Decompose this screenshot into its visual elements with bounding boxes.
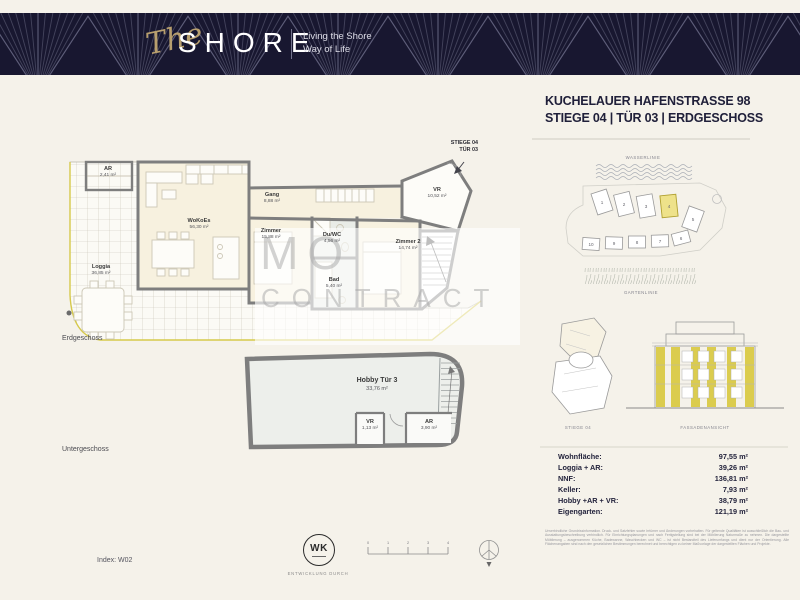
site-building-1: 1 (601, 200, 604, 205)
wk-logo-subline (312, 556, 326, 557)
development-label: ENTWICKLUNG DURCH (288, 571, 349, 576)
plan-stiege-label: STIEGE 04 (440, 140, 478, 147)
water-waves (596, 165, 692, 180)
room-name: AR (421, 419, 437, 426)
wk-logo-text: WK (310, 544, 328, 554)
room-area: 56,30 m² (188, 225, 211, 231)
plan-unit-label: STIEGE 04 TÜR 03 (440, 140, 478, 154)
room-area: 3,90 m² (421, 426, 437, 432)
room-name: Du/WC (323, 232, 341, 239)
summary-row-wohnflaeche: Wohnfläche: 97,55 m² (558, 452, 748, 463)
room-label-zimmer2: Zimmer 2 14,74 m² (396, 239, 421, 252)
summary-value: 97,55 m² (719, 452, 748, 463)
summary-value: 7,93 m² (723, 485, 748, 496)
wk-logo: WK (303, 534, 335, 566)
room-area: 4,56 m² (323, 239, 341, 245)
summary-row-hobby: Hobby +AR + VR: 38,79 m² (558, 496, 748, 507)
facade-elevation (626, 322, 784, 408)
watermark-line2: CONTRACT (261, 285, 520, 311)
room-label-hobby: Hobby Tür 3 33,76 m² (357, 376, 398, 393)
level-label-untergeschoss: Untergeschoss (62, 446, 109, 453)
summary-label: Eigengarten: (558, 507, 603, 518)
room-label-duwc: Du/WC 4,56 m² (323, 232, 341, 245)
room-area: 5,40 m² (326, 284, 342, 290)
site-building-6: 6 (680, 236, 683, 241)
room-label-vr: VR 10,52 m² (428, 187, 447, 200)
summary-value: 121,19 m² (715, 507, 748, 518)
site-building-10: 10 (588, 242, 594, 247)
room-area: 36,85 m² (92, 271, 111, 277)
summary-value: 38,79 m² (719, 496, 748, 507)
summary-label: Keller: (558, 485, 581, 496)
level-label-erdgeschoss: Erdgeschoss (62, 335, 102, 342)
scale-tick-2: 2 (407, 541, 409, 545)
scale-tick-3: 3 (427, 541, 429, 545)
stiege-footprint (552, 318, 612, 414)
watermark-line1: IMMO (255, 228, 520, 279)
expose-page: The SHORE Living the Shore Way of Life K… (0, 0, 800, 600)
stiege-diagram-label: STIEGE 04 (565, 425, 591, 430)
room-area: 33,76 m² (357, 385, 398, 393)
site-building-2: 2 (623, 202, 626, 207)
room-area: 2,41 m² (100, 173, 116, 179)
summary-value: 39,26 m² (719, 463, 748, 474)
room-name: Hobby Tür 3 (357, 376, 398, 385)
basement-plan (247, 354, 462, 447)
summary-label: NNF: (558, 474, 575, 485)
area-summary-table: Wohnfläche: 97,55 m² Loggia + AR: 39,26 … (558, 452, 748, 517)
room-area: 1,13 m² (362, 426, 378, 432)
room-name: Loggia (92, 264, 111, 271)
scale-bar: 0 1 2 3 4 (367, 541, 449, 554)
scale-tick-1: 1 (387, 541, 389, 545)
facade-diagram-label: FASSADENANSICHT (680, 425, 729, 430)
room-name: Gang (264, 192, 280, 199)
scale-tick-0: 0 (367, 541, 369, 545)
summary-label: Wohnfläche: (558, 452, 602, 463)
site-building-5: 5 (692, 217, 695, 222)
site-building-8: 8 (636, 240, 639, 245)
summary-label: Loggia + AR: (558, 463, 603, 474)
room-area: 8,88 m² (264, 199, 280, 205)
room-label-loggia: Loggia 36,85 m² (92, 264, 111, 277)
room-name: VR (428, 187, 447, 194)
room-label-ar: AR 2,41 m² (100, 166, 116, 179)
garden-grass (584, 268, 696, 284)
site-building-4-highlighted: 4 (668, 204, 671, 209)
site-building-9: 9 (613, 241, 616, 246)
room-name: WoKoEs (188, 218, 211, 225)
room-label-gang: Gang 8,88 m² (264, 192, 280, 205)
room-name: Zimmer (261, 228, 281, 235)
site-building-3: 3 (645, 204, 648, 209)
immo-contract-watermark: IMMO CONTRACT (255, 228, 520, 345)
site-building-7: 7 (659, 239, 662, 244)
room-area: 15,88 m² (261, 235, 281, 241)
disclaimer-text: Unverbindliche Grundrissinformation. Dru… (545, 529, 789, 546)
room-label-zimmer: Zimmer 15,88 m² (261, 228, 281, 241)
site-plan: 1 2 3 4 5 10 9 8 7 6 (566, 165, 726, 285)
room-name: Bad (326, 277, 342, 284)
room-area: 10,52 m² (428, 194, 447, 200)
summary-row-loggia-ar: Loggia + AR: 39,26 m² (558, 463, 748, 474)
room-label-basement-vr: VR 1,13 m² (362, 419, 378, 432)
summary-row-nnf: NNF: 136,81 m² (558, 474, 748, 485)
garden-line-label: GARTENLINIE (624, 290, 658, 295)
summary-value: 136,81 m² (715, 474, 748, 485)
summary-row-keller: Keller: 7,93 m² (558, 485, 748, 496)
plan-tuer-label: TÜR 03 (440, 147, 478, 154)
room-label-bad: Bad 5,40 m² (326, 277, 342, 290)
water-line-label: WASSERLINIE (626, 155, 661, 160)
index-label: Index: W02 (97, 557, 132, 564)
room-label-wokoes: WoKoEs 56,30 m² (188, 218, 211, 231)
room-name: Zimmer 2 (396, 239, 421, 246)
room-name: AR (100, 166, 116, 173)
scale-tick-4: 4 (447, 541, 449, 545)
compass-icon (480, 541, 499, 568)
room-label-basement-ar: AR 3,90 m² (421, 419, 437, 432)
room-area: 14,74 m² (396, 246, 421, 252)
summary-label: Hobby +AR + VR: (558, 496, 618, 507)
summary-row-eigengarten: Eigengarten: 121,19 m² (558, 507, 748, 518)
room-name: VR (362, 419, 378, 426)
